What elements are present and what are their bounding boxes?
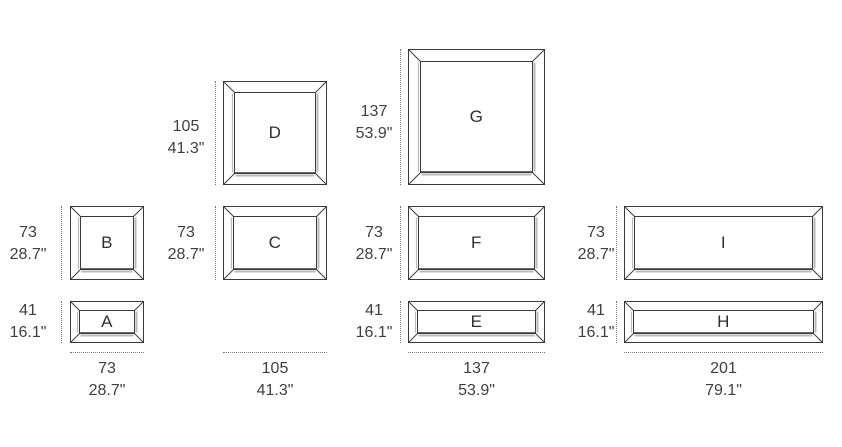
frame-c-letter: C (223, 206, 327, 280)
column-201-width-label: 201 79.1" (624, 358, 823, 402)
frame-i-extension-line (616, 206, 617, 280)
frame-a: A (70, 301, 144, 343)
frame-h-height-label: 41 16.1" (572, 300, 620, 344)
frame-f-height-label: 73 28.7" (350, 222, 398, 266)
column-201-width-inch: 79.1" (624, 380, 823, 402)
column-137-width-inch: 53.9" (408, 380, 545, 402)
size-diagram-canvas: 73 28.7" B 41 16.1" A 73 28.7" 105 41.3"… (0, 0, 842, 447)
column-201-width-line (624, 352, 823, 353)
frame-e-extension-line (400, 301, 401, 343)
frame-b-height-inch: 28.7" (4, 244, 52, 266)
frame-h: H (624, 301, 823, 343)
column-137-width-cm: 137 (408, 358, 545, 380)
column-73-width-line (70, 352, 144, 353)
frame-g-height-inch: 53.9" (350, 123, 398, 145)
frame-h-letter: H (624, 301, 823, 343)
frame-b-extension-line (61, 206, 62, 280)
frame-b: B (70, 206, 144, 280)
column-201-width-cm: 201 (624, 358, 823, 380)
frame-d-letter: D (223, 81, 327, 185)
frame-d-height-inch: 41.3" (162, 138, 210, 160)
column-137-width-line (408, 352, 545, 353)
frame-a-height-label: 41 16.1" (4, 300, 52, 344)
column-137-width-label: 137 53.9" (408, 358, 545, 402)
frame-g: G (408, 49, 545, 185)
frame-d-height-cm: 105 (162, 116, 210, 138)
frame-d: D (223, 81, 327, 185)
frame-e-height-inch: 16.1" (350, 322, 398, 344)
frame-f-height-cm: 73 (350, 222, 398, 244)
frame-h-height-cm: 41 (572, 300, 620, 322)
frame-e-letter: E (408, 301, 545, 343)
frame-e-height-label: 41 16.1" (350, 300, 398, 344)
frame-c-height-cm: 73 (162, 222, 210, 244)
column-73-width-cm: 73 (58, 358, 156, 380)
frame-a-height-inch: 16.1" (4, 322, 52, 344)
frame-a-extension-line (61, 301, 62, 343)
frame-g-height-label: 137 53.9" (350, 101, 398, 145)
frame-a-letter: A (70, 301, 144, 343)
frame-f-extension-line (400, 206, 401, 280)
frame-e-height-cm: 41 (350, 300, 398, 322)
frame-i-height-label: 73 28.7" (572, 222, 620, 266)
frame-i-letter: I (624, 206, 823, 280)
frame-i: I (624, 206, 823, 280)
column-105-width-line (223, 352, 327, 353)
frame-c-height-inch: 28.7" (162, 244, 210, 266)
frame-h-extension-line (616, 301, 617, 343)
frame-h-height-inch: 16.1" (572, 322, 620, 344)
column-105-width-cm: 105 (211, 358, 339, 380)
frame-f-letter: F (408, 206, 545, 280)
frame-i-height-cm: 73 (572, 222, 620, 244)
column-73-width-label: 73 28.7" (58, 358, 156, 402)
frame-g-height-cm: 137 (350, 101, 398, 123)
frame-c: C (223, 206, 327, 280)
column-105-width-inch: 41.3" (211, 380, 339, 402)
frame-b-letter: B (70, 206, 144, 280)
frame-b-height-cm: 73 (4, 222, 52, 244)
frame-d-height-label: 105 41.3" (162, 116, 210, 160)
frame-a-height-cm: 41 (4, 300, 52, 322)
column-73-width-inch: 28.7" (58, 380, 156, 402)
frame-c-height-label: 73 28.7" (162, 222, 210, 266)
frame-f: F (408, 206, 545, 280)
frame-e: E (408, 301, 545, 343)
frame-b-height-label: 73 28.7" (4, 222, 52, 266)
frame-g-letter: G (408, 49, 545, 185)
frame-c-extension-line (215, 206, 216, 280)
frame-f-height-inch: 28.7" (350, 244, 398, 266)
column-105-width-label: 105 41.3" (211, 358, 339, 402)
frame-g-extension-line (400, 49, 401, 185)
frame-i-height-inch: 28.7" (572, 244, 620, 266)
frame-d-extension-line (215, 81, 216, 185)
